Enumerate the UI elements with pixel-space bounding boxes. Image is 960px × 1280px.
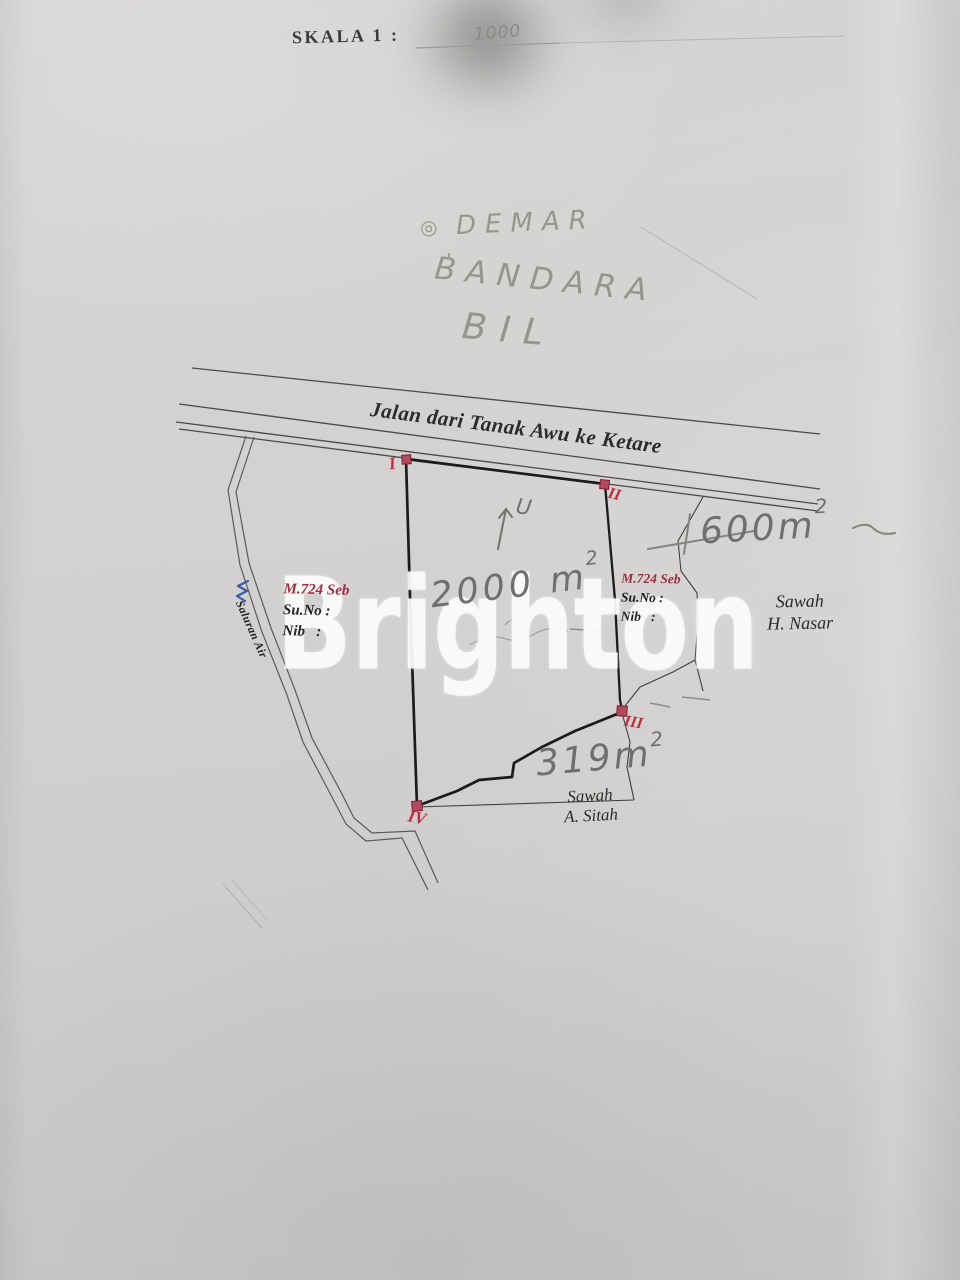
- scale-label: SKALA 1 :: [292, 25, 400, 49]
- north-arrow-label: U: [514, 494, 533, 520]
- parcel-left-code: M.724 Seb: [283, 579, 349, 602]
- neighbor-east-label: Sawah H. Nasar: [750, 589, 851, 635]
- parcel-right-label: M.724 Seb Su.No : Nib :: [621, 568, 681, 626]
- note-demar: DEMAR: [455, 205, 596, 241]
- note-circle-icon: ◎: [419, 215, 438, 240]
- parcel-right-code: M.724 Seb: [621, 568, 681, 588]
- north-arrow: [498, 509, 512, 549]
- parcel-left-nib: Nib :: [282, 621, 348, 644]
- area-east: 600m2: [699, 505, 829, 553]
- parcel-right-suno: Su.No :: [621, 587, 681, 607]
- parcel-left-suno: Su.No :: [283, 600, 349, 623]
- scanned-land-sketch: Brighton SKALA 1 : 1000 ◎ DEMAR ' BANDAR…: [0, 0, 960, 1280]
- scale-value: 1000: [473, 21, 522, 45]
- road-lines: [176, 368, 820, 511]
- area-south-sup: 2: [649, 728, 664, 752]
- note-bil: BIL: [460, 306, 558, 355]
- neighbor-south-label: Sawah A. Sitah: [542, 784, 639, 829]
- neighbor-east-line1: Sawah: [750, 589, 850, 613]
- area-east-value: 600m: [699, 505, 817, 552]
- area-main-sup: 2: [584, 546, 599, 570]
- parcel-right-nib: Nib :: [621, 606, 681, 626]
- neighbor-east-line2: H. Nasar: [750, 611, 850, 635]
- boundary-numeral-3: III: [623, 713, 645, 734]
- area-east-sup: 2: [814, 495, 828, 519]
- parcel-left-label: M.724 Seb Su.No : Nib :: [282, 579, 349, 644]
